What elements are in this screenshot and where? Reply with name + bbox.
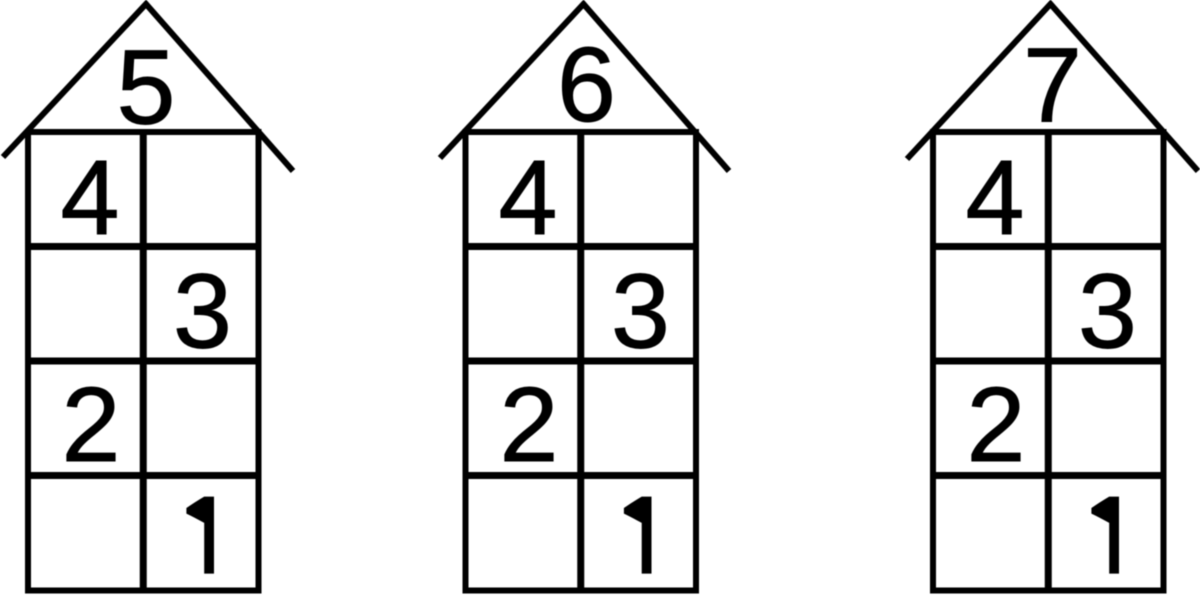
svg-text:3: 3 (1078, 253, 1137, 371)
svg-text:6: 6 (557, 26, 616, 144)
svg-text:5: 5 (117, 29, 176, 147)
svg-text:2: 2 (967, 366, 1026, 484)
svg-text:7: 7 (1023, 27, 1082, 145)
svg-text:3: 3 (173, 253, 232, 371)
svg-text:2: 2 (62, 366, 121, 484)
svg-text:4: 4 (61, 139, 120, 257)
svg-text:3: 3 (611, 253, 670, 371)
svg-text:4: 4 (499, 139, 558, 257)
svg-text:4: 4 (966, 139, 1025, 257)
svg-text:2: 2 (500, 366, 559, 484)
